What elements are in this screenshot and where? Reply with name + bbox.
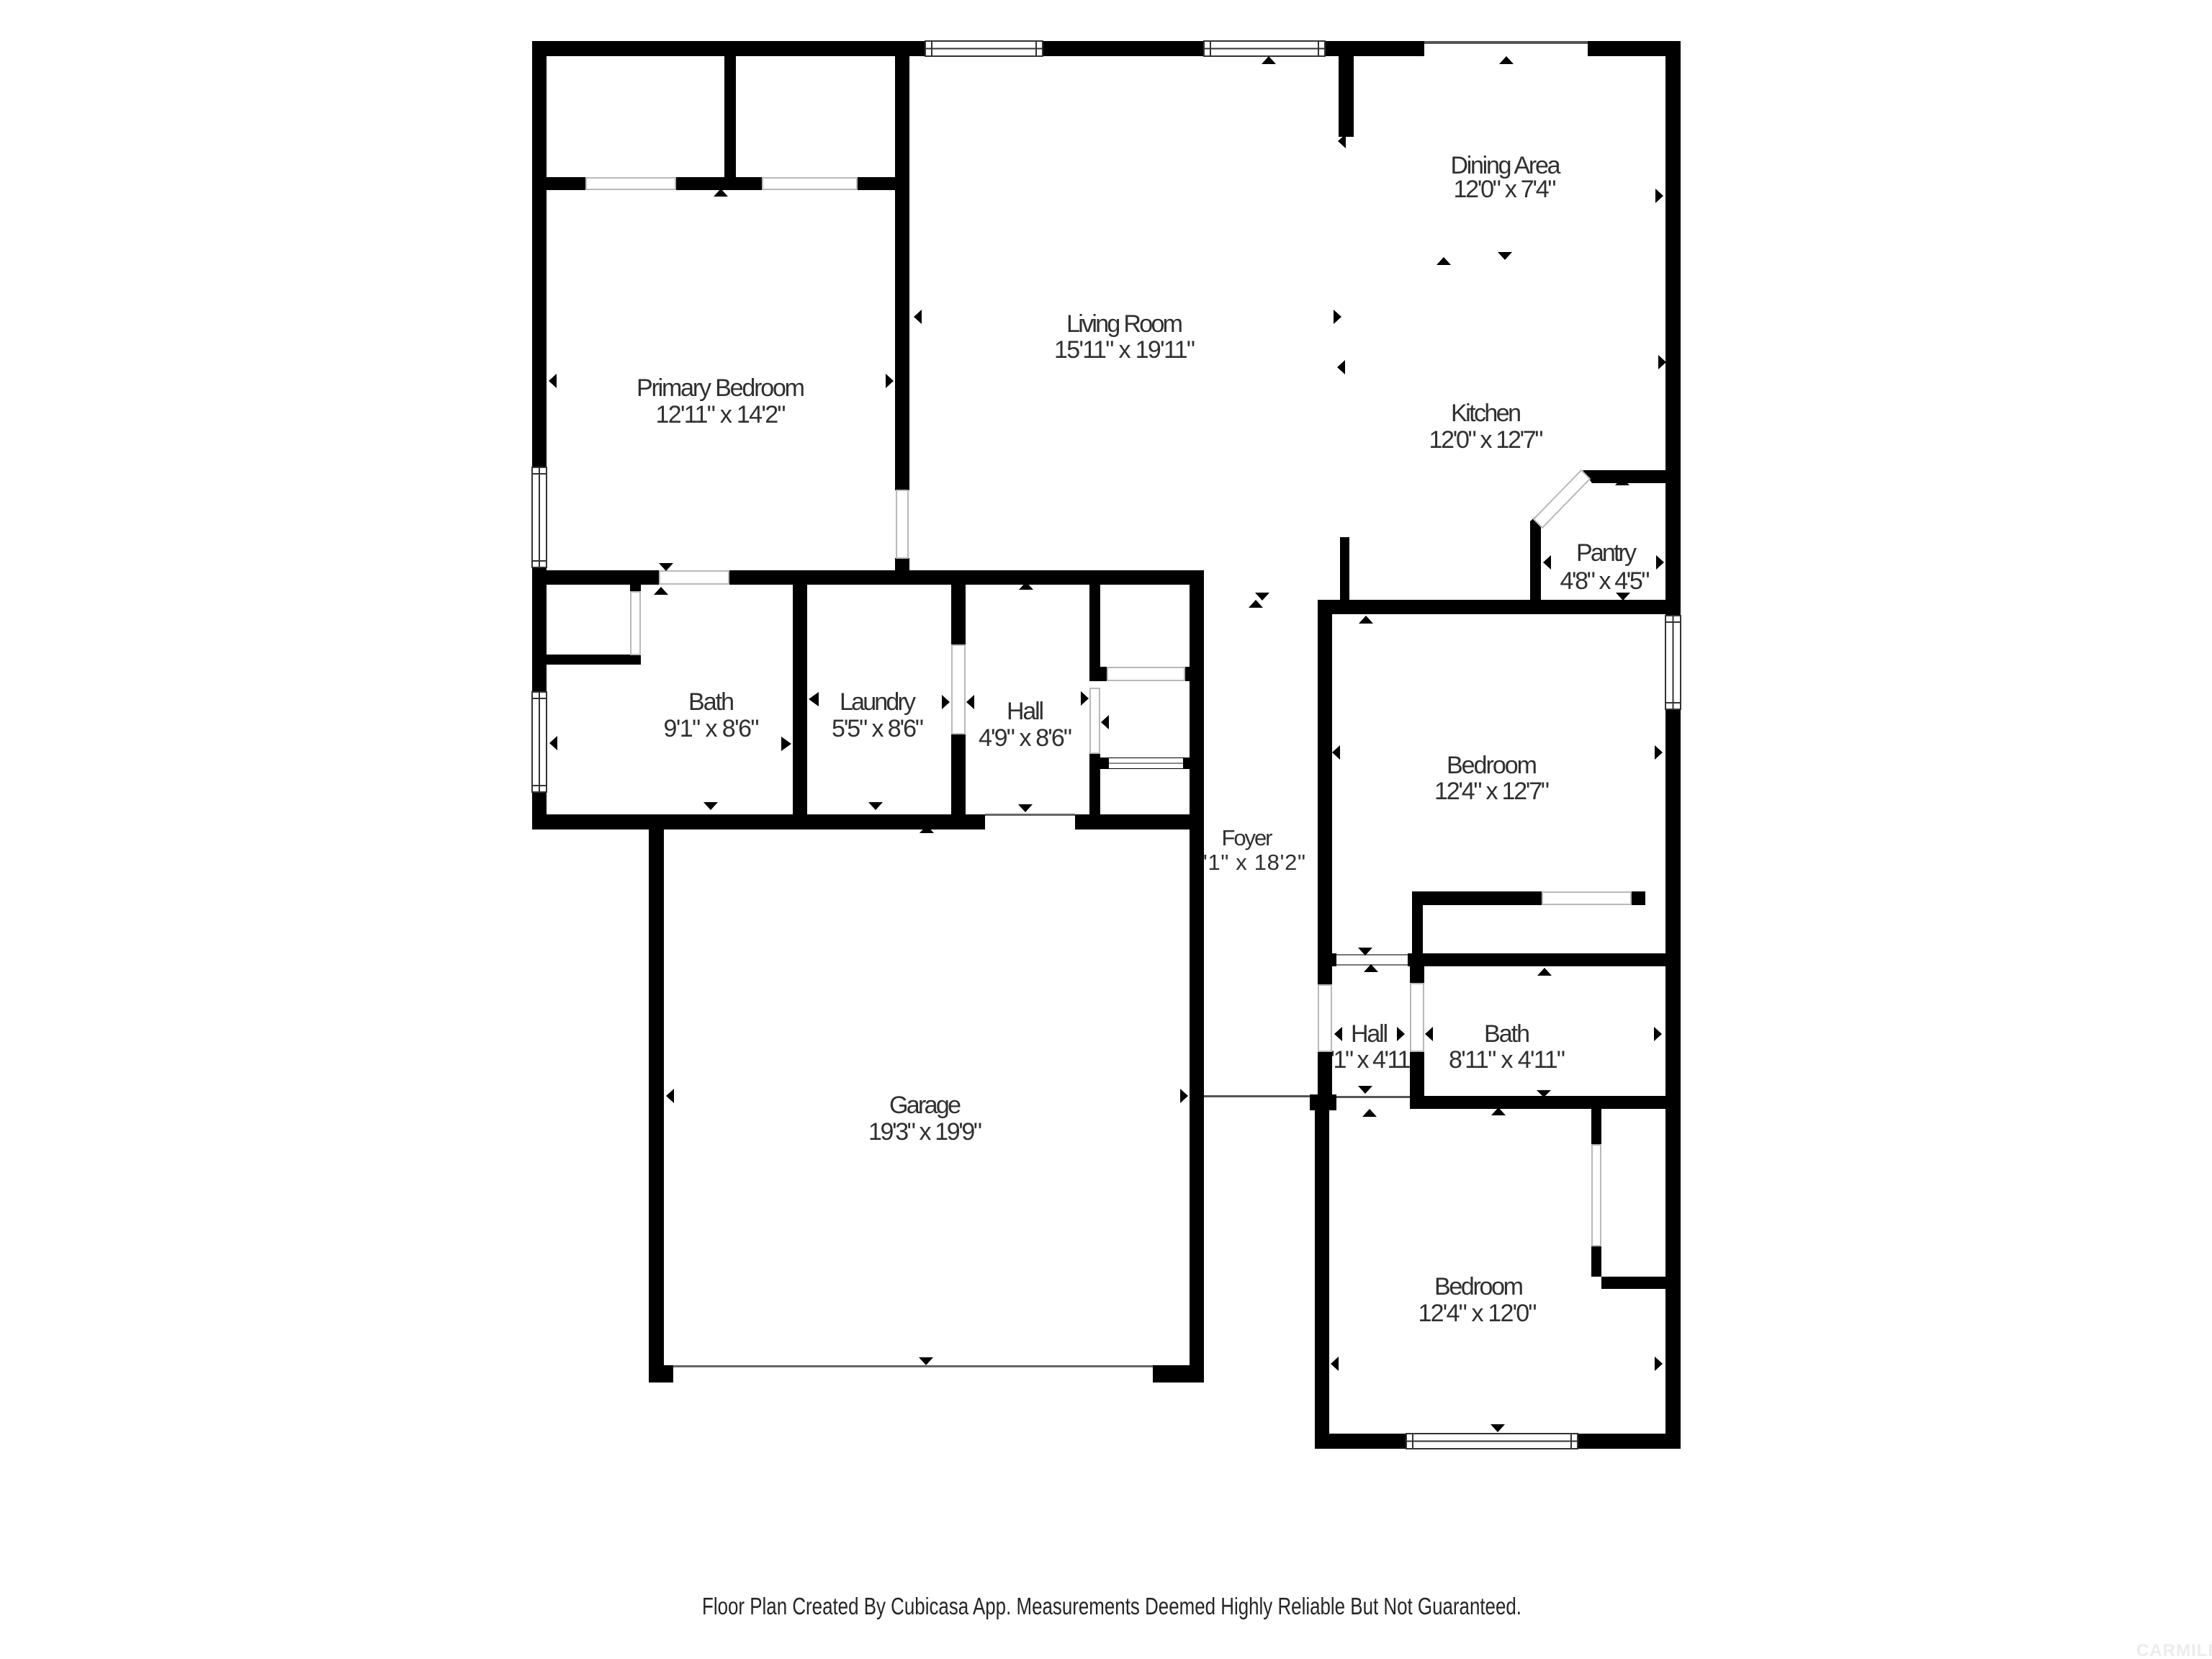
svg-text:Bath: Bath — [688, 688, 734, 716]
svg-text:Foyer: Foyer — [1222, 825, 1273, 850]
svg-text:Pantry: Pantry — [1576, 539, 1637, 567]
svg-text:Hall: Hall — [1351, 1020, 1388, 1048]
svg-text:Bedroom: Bedroom — [1434, 1273, 1524, 1300]
svg-text:12'0" x 12'7": 12'0" x 12'7" — [1429, 426, 1544, 454]
svg-text:Primary Bedroom: Primary Bedroom — [637, 374, 805, 402]
svg-text:12'0" x 7'4": 12'0" x 7'4" — [1454, 176, 1557, 203]
svg-text:Floor Plan Created By Cubicasa: Floor Plan Created By Cubicasa App. Meas… — [702, 1593, 1521, 1619]
svg-text:12'4" x 12'7": 12'4" x 12'7" — [1434, 778, 1550, 805]
svg-text:Bath: Bath — [1484, 1020, 1530, 1048]
svg-text:Laundry: Laundry — [840, 688, 916, 716]
svg-text:19'3" x 19'9": 19'3" x 19'9" — [868, 1118, 982, 1146]
svg-text:8'11" x 4'11": 8'11" x 4'11" — [1449, 1046, 1565, 1074]
svg-text:Bedroom: Bedroom — [1447, 752, 1537, 779]
svg-text:Garage: Garage — [889, 1092, 961, 1119]
svg-text:Living Room: Living Room — [1066, 310, 1183, 338]
svg-text:12'11" x 14'2": 12'11" x 14'2" — [656, 401, 786, 428]
svg-text:Hall: Hall — [1007, 698, 1044, 725]
svg-text:15'11" x 19'11": 15'11" x 19'11" — [1054, 336, 1195, 364]
svg-text:3'1" x 4'11": 3'1" x 4'11" — [1318, 1046, 1418, 1074]
svg-text:5'5" x 8'6": 5'5" x 8'6" — [832, 715, 924, 742]
svg-text:CARMILE, INC: CARMILE, INC — [2136, 1641, 2212, 1659]
svg-text:9'1" x 18'2": 9'1" x 18'2" — [1190, 850, 1305, 875]
svg-text:9'1" x 8'6": 9'1" x 8'6" — [664, 715, 760, 742]
svg-text:4'9" x 8'6": 4'9" x 8'6" — [979, 724, 1072, 752]
svg-text:Kitchen: Kitchen — [1451, 400, 1521, 427]
svg-text:12'4" x 12'0": 12'4" x 12'0" — [1419, 1300, 1537, 1327]
svg-text:4'8" x 4'5": 4'8" x 4'5" — [1560, 567, 1650, 595]
